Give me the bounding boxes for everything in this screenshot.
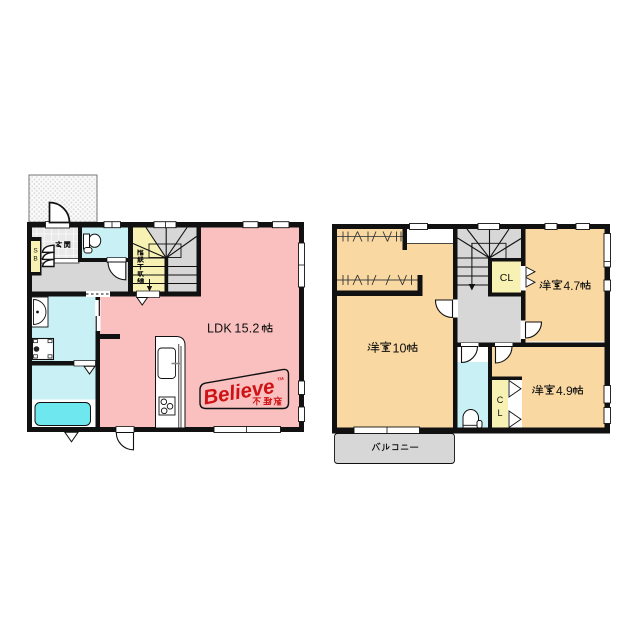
svg-text:L: L — [497, 408, 502, 418]
svg-text:4.7: 4.7 — [564, 279, 581, 293]
svg-text:4.9: 4.9 — [556, 384, 573, 398]
svg-text:10: 10 — [393, 342, 407, 356]
svg-text:CL: CL — [500, 272, 514, 284]
svg-text:S: S — [33, 248, 38, 255]
svg-text:B: B — [33, 256, 37, 263]
svg-text:C: C — [497, 395, 504, 405]
